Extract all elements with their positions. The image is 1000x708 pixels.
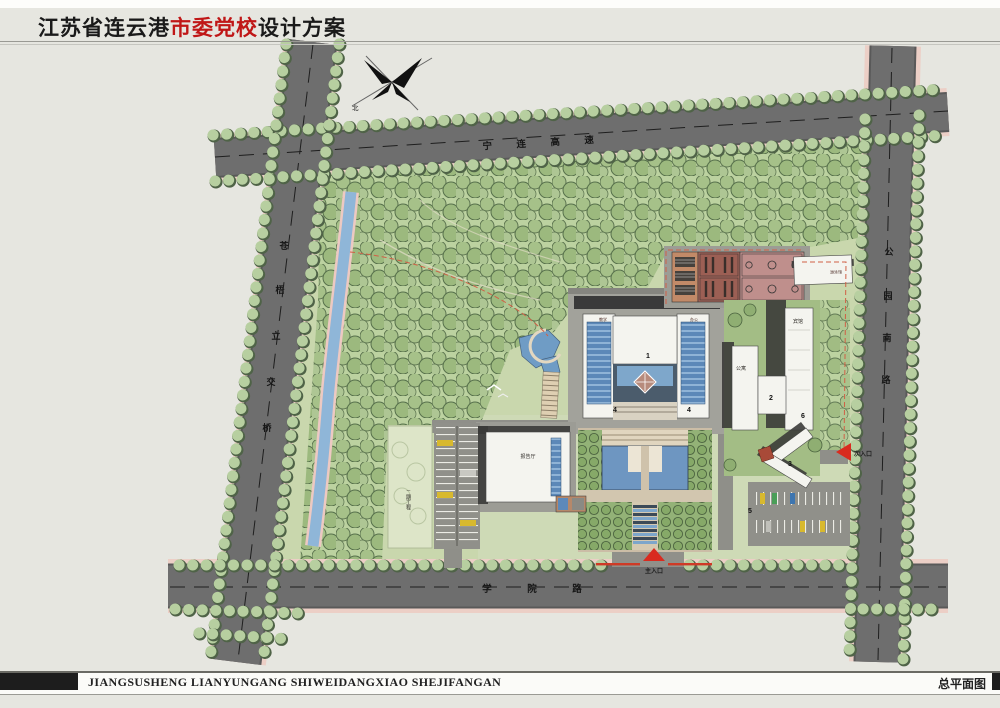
- terrace-steps: [541, 372, 559, 419]
- car: [437, 492, 453, 498]
- road-char: 路: [881, 374, 891, 385]
- marker-5: 5: [748, 508, 752, 515]
- sheet-name-label: 总平面图: [938, 675, 986, 692]
- car: [766, 521, 771, 532]
- marker-4a: 4: [613, 407, 617, 414]
- se-parking-base: [748, 482, 850, 546]
- road-char: 高: [550, 136, 561, 149]
- car: [820, 521, 825, 532]
- road-char: 苍: [278, 240, 289, 251]
- road-char: 南: [882, 332, 891, 343]
- road-char: 桥: [262, 422, 272, 433]
- marker-1: 1: [646, 353, 650, 360]
- car: [790, 493, 795, 504]
- road-char: 园: [883, 291, 892, 301]
- north-char: 北: [352, 104, 359, 112]
- marker-2: 2: [769, 395, 773, 402]
- natatorium: 游泳馆: [792, 255, 855, 285]
- page-title: 江苏省连云港市委党校设计方案: [38, 12, 346, 42]
- site-plan-canvas: 二期工程: [0, 0, 1000, 708]
- hotel-label: 宾馆: [793, 318, 803, 325]
- marker-4b: 4: [687, 407, 691, 414]
- title-rule-2: [0, 44, 1000, 45]
- car: [800, 521, 805, 532]
- car: [760, 493, 765, 504]
- main-building-complex: 教学 办公 1 4 4: [583, 314, 709, 420]
- phase2-area: 二期工程: [388, 426, 432, 548]
- car: [460, 470, 476, 476]
- main-entrance-label: 主入口: [645, 567, 663, 575]
- apartment-label: 公寓: [736, 365, 746, 372]
- teaching-roof-label: 教学: [599, 316, 607, 322]
- road-char: 院: [527, 583, 537, 595]
- car: [437, 440, 453, 446]
- hotel: [785, 308, 813, 430]
- phase2-label: 二期工程: [405, 490, 411, 511]
- car: [772, 493, 777, 504]
- west-parking: [434, 423, 480, 549]
- auditorium: 报告厅: [478, 426, 570, 504]
- road-char: 路: [572, 583, 582, 595]
- road-char: 交: [266, 376, 275, 387]
- road-char: 速: [584, 134, 595, 147]
- marker-6: 6: [801, 413, 805, 420]
- car: [460, 520, 476, 526]
- footer-left-block: [0, 673, 78, 690]
- road-char: 学: [482, 583, 492, 595]
- footer-romanized-title: JIANGSUSHENG LIANYUNGANG SHIWEIDANGXIAO …: [88, 675, 501, 690]
- title-part2: 设计方案: [258, 16, 346, 40]
- road-char: 立: [271, 330, 280, 341]
- road-char: 连: [516, 138, 527, 151]
- natatorium-label: 游泳馆: [830, 268, 842, 274]
- service-structures: [556, 496, 586, 512]
- sports-courts: [672, 252, 804, 302]
- apartment: [732, 346, 758, 430]
- north-arrow-icon: 北: [352, 56, 432, 112]
- marker-3: 3: [788, 461, 792, 468]
- central-hall: [613, 316, 677, 364]
- title-part1: 江苏省连云港: [38, 16, 170, 40]
- title-accent: 市委党校: [170, 16, 258, 40]
- road-char: 宁: [482, 140, 493, 153]
- axis-garden: [578, 428, 712, 552]
- office-roof-label: 办公: [690, 316, 698, 322]
- road-char: 公: [884, 247, 893, 257]
- secondary-entrance-label: 次入口: [854, 450, 872, 458]
- road-char: 梧: [275, 284, 284, 295]
- auditorium-label: 报告厅: [520, 453, 535, 460]
- footer-right-block: [992, 673, 1000, 690]
